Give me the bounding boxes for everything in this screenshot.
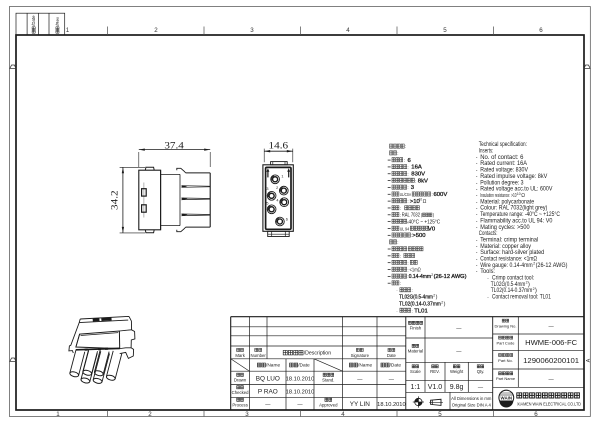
svg-text::: :: [397, 151, 398, 156]
svg-text:-: -: [476, 187, 478, 193]
svg-text:600V: 600V: [434, 192, 448, 198]
svg-text:Mating cycles: >500: Mating cycles: >500: [480, 225, 530, 231]
svg-text:Rated current: 16A: Rated current: 16A: [480, 161, 527, 167]
svg-text:1: 1: [56, 411, 60, 418]
svg-text:3: 3: [250, 27, 254, 34]
svg-text:16A: 16A: [411, 165, 422, 171]
svg-text:/Date: /Date: [390, 362, 402, 368]
svg-text:-: -: [476, 250, 478, 256]
svg-text:Technical specification:: Technical specification:: [479, 142, 527, 148]
svg-text:REV.: REV.: [430, 369, 440, 374]
svg-text:Weight: Weight: [450, 369, 464, 374]
svg-text:UL/CSA: UL/CSA: [400, 192, 412, 197]
svg-text::: :: [412, 288, 413, 293]
svg-text:Part Code: Part Code: [496, 340, 515, 345]
svg-text:18.10.2010: 18.10.2010: [286, 389, 314, 395]
svg-text:Process: Process: [232, 403, 248, 408]
svg-text:830V: 830V: [411, 172, 425, 178]
svg-text:(26-12 AWG): (26-12 AWG): [536, 263, 568, 269]
svg-text:2: 2: [276, 186, 278, 190]
svg-text:Pollution degree: 3: Pollution degree: 3: [480, 180, 524, 186]
svg-text:Original Size DIN A 4: Original Size DIN A 4: [452, 403, 492, 408]
svg-text:—: —: [549, 377, 555, 383]
svg-text:Drawing No.: Drawing No.: [494, 323, 516, 328]
svg-text:HWME-006-FC: HWME-006-FC: [525, 338, 577, 347]
svg-text:Inserts:: Inserts:: [479, 149, 494, 155]
svg-text:18.10.2010: 18.10.2010: [377, 402, 405, 408]
svg-text:P RAO: P RAO: [258, 388, 278, 395]
svg-text:-: -: [476, 244, 478, 250]
svg-text:Part No.: Part No.: [498, 358, 513, 363]
svg-text:Material: polycarbonate: Material: polycarbonate: [480, 199, 534, 205]
svg-text:4: 4: [341, 411, 345, 418]
svg-text:A: A: [586, 358, 592, 362]
svg-text:/Description: /Description: [304, 350, 332, 356]
svg-text:V1.0: V1.0: [428, 384, 443, 391]
svg-text:4: 4: [276, 199, 278, 203]
svg-text:0.14-4mm: 0.14-4mm: [409, 274, 432, 280]
svg-text:-: -: [476, 193, 478, 199]
svg-text::: :: [407, 172, 408, 177]
svg-text:Drawn: Drawn: [234, 378, 247, 383]
svg-text:-: -: [476, 269, 478, 275]
svg-text:/Name: /Name: [266, 362, 280, 368]
svg-text:-40°C ~ +125°C: -40°C ~ +125°C: [407, 219, 440, 225]
svg-text:Insulation resistance: >10: Insulation resistance: >10: [480, 193, 516, 199]
svg-text:2: 2: [148, 411, 152, 418]
svg-text:Tools:: Tools:: [480, 269, 495, 275]
svg-text:Ω: Ω: [423, 199, 427, 205]
svg-text:YY LIN: YY LIN: [350, 401, 371, 408]
svg-text:14.6: 14.6: [269, 142, 289, 152]
svg-text:Signature: Signature: [351, 353, 370, 358]
svg-text:Rated voltage: 830V: Rated voltage: 830V: [480, 168, 528, 174]
svg-text:6: 6: [539, 27, 543, 34]
svg-text:1: 1: [66, 27, 70, 34]
svg-text:18.10.2010: 18.10.2010: [286, 377, 314, 383]
svg-text:Contact resistance: <1mΩ: Contact resistance: <1mΩ: [480, 257, 537, 263]
svg-text:V0: V0: [428, 226, 436, 232]
svg-text:/Rev: /Rev: [55, 16, 60, 26]
svg-text:Qty.: Qty.: [477, 369, 485, 374]
svg-text:/Name: /Name: [358, 362, 372, 368]
svg-text:6: 6: [286, 218, 288, 222]
svg-text:-: -: [476, 212, 478, 218]
svg-text:-: -: [476, 237, 478, 243]
svg-text::: :: [407, 267, 408, 272]
svg-text:—: —: [478, 385, 484, 391]
svg-text:Ω: Ω: [521, 193, 525, 199]
svg-text:XIAMEN WAIN ELECTRICAL CO.LTD: XIAMEN WAIN ELECTRICAL CO.LTD: [517, 402, 581, 407]
svg-text:—: —: [456, 326, 462, 332]
svg-text:1:1: 1:1: [411, 384, 421, 391]
svg-text:Contact removal tool: TL01: Contact removal tool: TL01: [492, 295, 551, 301]
svg-text::: :: [407, 199, 408, 204]
svg-text:<1mΩ: <1mΩ: [410, 267, 421, 273]
svg-text:Colour: RAL 7032(light grey): Colour: RAL 7032(light grey): [480, 206, 547, 212]
svg-text:Mark: Mark: [235, 353, 245, 358]
svg-text:UL 94: UL 94: [400, 226, 410, 231]
svg-text:Temperature range: -40°C ~ +12: Temperature range: -40°C ~ +125°C: [480, 212, 560, 218]
svg-text:Crimp contact tool:: Crimp contact tool:: [492, 276, 534, 282]
svg-text::: :: [407, 185, 408, 190]
svg-text:No. of contact: 6: No. of contact: 6: [480, 155, 524, 161]
svg-text:Date: Date: [387, 353, 397, 358]
svg-text:Rated impulse voltage: 8kV: Rated impulse voltage: 8kV: [480, 174, 547, 180]
svg-text:·: ·: [396, 308, 398, 313]
svg-text:3: 3: [245, 411, 249, 418]
svg-text:-: -: [476, 174, 478, 180]
svg-text:Wire gauge: 0.14-4mm: Wire gauge: 0.14-4mm: [480, 263, 533, 269]
svg-text:-: -: [476, 218, 478, 224]
svg-text:TL02G(0.5-4mm: TL02G(0.5-4mm: [491, 282, 526, 288]
svg-text:10: 10: [517, 192, 521, 196]
svg-text:-: -: [476, 161, 478, 167]
svg-text:Terminal: crimp terminal: Terminal: crimp terminal: [480, 237, 538, 243]
svg-text:5: 5: [438, 411, 442, 418]
svg-text:—: —: [389, 376, 395, 382]
svg-text:RAL 7032: RAL 7032: [402, 213, 420, 219]
svg-text:9.8g: 9.8g: [450, 384, 464, 391]
svg-text::: :: [397, 240, 398, 245]
svg-text:Stand.: Stand.: [322, 378, 334, 383]
svg-text:Flammability acc.to UL 94: V0: Flammability acc.to UL 94: V0: [480, 218, 553, 224]
svg-text:-: -: [476, 155, 478, 161]
svg-text:/Date: /Date: [31, 15, 36, 26]
svg-text:—: —: [297, 402, 303, 408]
svg-text:Material: Material: [408, 349, 423, 354]
svg-text:): ): [436, 295, 438, 301]
svg-text:-: -: [476, 263, 478, 269]
svg-text:/Date: /Date: [298, 362, 310, 368]
svg-text::: :: [407, 165, 408, 170]
svg-text:—: —: [456, 349, 462, 355]
svg-text::: :: [415, 178, 416, 183]
svg-text:3: 3: [266, 187, 268, 191]
svg-text:): ): [444, 302, 446, 308]
svg-text::: :: [407, 261, 408, 266]
svg-text::: :: [412, 308, 413, 313]
svg-text::: :: [400, 254, 401, 259]
svg-text:): ): [528, 282, 530, 288]
svg-text:—: —: [357, 376, 363, 382]
svg-text:WAIN: WAIN: [501, 395, 513, 400]
svg-text:TL02G(0.5-4mm: TL02G(0.5-4mm: [399, 295, 433, 301]
svg-text:-: -: [476, 225, 478, 231]
svg-text:TL01: TL01: [414, 308, 427, 314]
svg-text:Approved: Approved: [319, 403, 338, 408]
svg-text:4: 4: [346, 27, 350, 34]
svg-text:-: -: [476, 206, 478, 212]
svg-text:8kV: 8kV: [418, 178, 428, 184]
svg-text::: :: [400, 281, 401, 286]
svg-text:-: -: [476, 257, 478, 263]
svg-text:(26-12 AWG): (26-12 AWG): [434, 274, 467, 280]
svg-text:-: -: [476, 199, 478, 205]
svg-text:5: 5: [443, 27, 447, 34]
svg-text::: :: [404, 158, 405, 163]
svg-text:-: -: [476, 168, 478, 174]
svg-text:2: 2: [154, 27, 158, 34]
svg-text:5: 5: [266, 202, 268, 206]
svg-text:-: -: [476, 180, 478, 186]
svg-text:—: —: [549, 324, 555, 330]
svg-text:34.2: 34.2: [111, 190, 121, 210]
svg-text:1: 1: [281, 175, 283, 179]
svg-text:Scale: Scale: [410, 369, 421, 374]
svg-text:BQ LUO: BQ LUO: [256, 376, 280, 383]
svg-text:TL02(0.14-0.37mm: TL02(0.14-0.37mm: [491, 288, 533, 294]
svg-text:Finish: Finish: [410, 326, 422, 331]
svg-text:Number: Number: [251, 353, 267, 358]
svg-text:All Dimensions in mm: All Dimensions in mm: [451, 396, 492, 401]
svg-text:TL02(0.14-0.37mm: TL02(0.14-0.37mm: [399, 302, 441, 308]
svg-text:—: —: [265, 402, 271, 408]
svg-text:Material: copper alloy: Material: copper alloy: [480, 244, 531, 250]
svg-text:1290060200101: 1290060200101: [523, 356, 579, 365]
svg-text:·: ·: [396, 288, 398, 293]
svg-text:Checked: Checked: [232, 390, 250, 395]
svg-text:>500: >500: [412, 233, 426, 239]
svg-text:37.4: 37.4: [164, 142, 184, 152]
svg-text::: :: [405, 144, 406, 149]
svg-text::: :: [400, 213, 401, 218]
svg-text:6: 6: [534, 411, 538, 418]
svg-text:Surface: hard-silver plated: Surface: hard-silver plated: [480, 250, 544, 256]
svg-text:): ): [535, 288, 537, 294]
svg-text::: :: [400, 206, 401, 211]
svg-text:Part Name: Part Name: [496, 376, 516, 381]
svg-text:Contacts:: Contacts:: [479, 231, 498, 237]
